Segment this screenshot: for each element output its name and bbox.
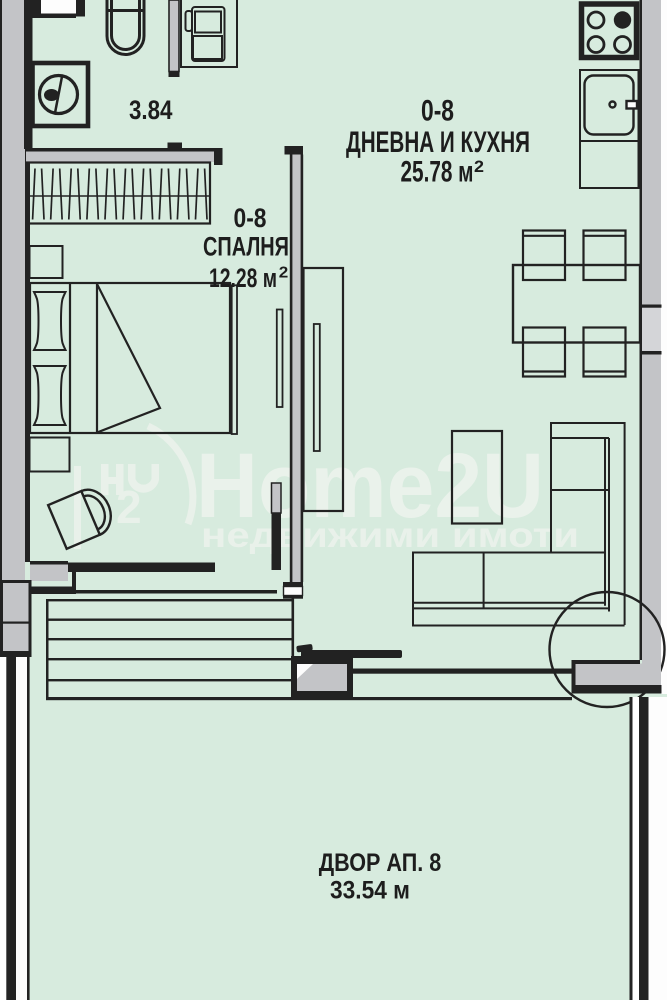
- svg-text:0-8: 0-8: [421, 95, 454, 128]
- svg-text:СПАЛНЯ: СПАЛНЯ: [203, 232, 289, 262]
- svg-text:0-8: 0-8: [234, 203, 267, 233]
- svg-text:2: 2: [279, 265, 289, 282]
- svg-text:недвижими имоти: недвижими имоти: [201, 516, 579, 555]
- svg-text:25.78 м: 25.78 м: [401, 156, 474, 189]
- svg-text:33.54 м: 33.54 м: [330, 877, 410, 905]
- svg-text:ДНЕВНА И КУХНЯ: ДНЕВНА И КУХНЯ: [346, 126, 530, 159]
- svg-text:12.28 м: 12.28 м: [209, 263, 277, 293]
- svg-text:ДВОР АП. 8: ДВОР АП. 8: [319, 849, 442, 877]
- svg-text:2: 2: [116, 481, 142, 533]
- svg-text:2: 2: [474, 157, 484, 176]
- svg-text:3.84: 3.84: [129, 95, 173, 125]
